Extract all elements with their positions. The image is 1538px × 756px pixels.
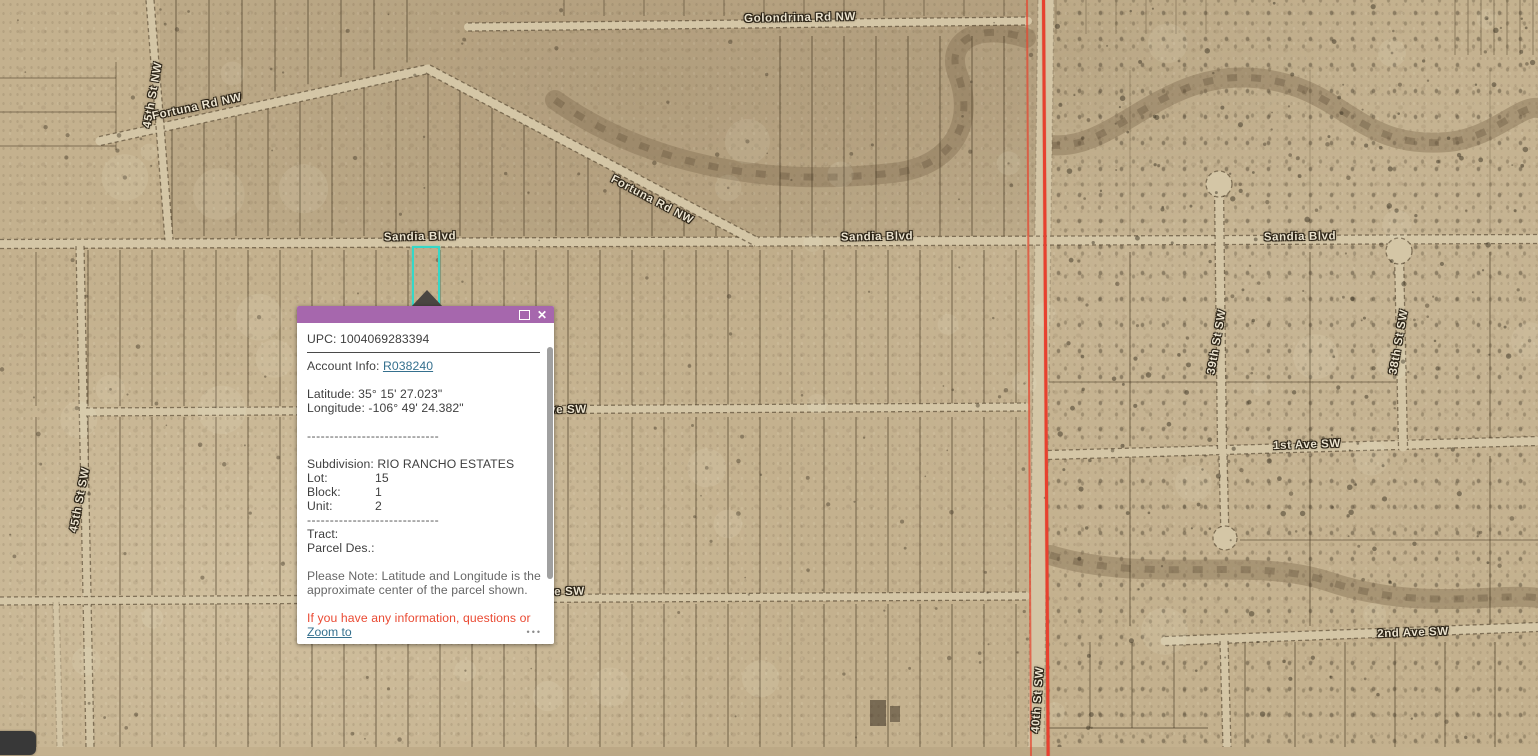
road-label: 38th St SW [1387, 308, 1410, 375]
zoom-to-link[interactable]: Zoom to [307, 625, 352, 639]
map-app: { "map": { "labels": [ "Golondrina Rd NW… [0, 0, 1538, 747]
tract-label: Tract: [307, 527, 540, 541]
road-labels-layer: Golondrina Rd NW45th St NWFortuna Rd NWF… [0, 0, 1538, 747]
close-icon[interactable]: ✕ [537, 309, 547, 321]
popup-footer: Zoom to ••• [307, 624, 542, 639]
dock-icon[interactable] [519, 310, 530, 320]
parcel-info-popup: ✕ UPC: 1004069283394 Account Info: R0382… [297, 306, 554, 644]
note-text: Please Note: Latitude and Longitude is t… [307, 569, 540, 583]
upc-value: UPC: 1004069283394 [307, 332, 540, 346]
road-label: ve SW [549, 404, 587, 417]
road-label: 40th St SW [1030, 667, 1047, 734]
road-label: 45th St SW [68, 466, 92, 533]
block-row: Block:1 [307, 485, 540, 499]
subdivision-value: Subdivision: RIO RANCHO ESTATES [307, 457, 540, 471]
note-text: approximate center of the parcel shown. [307, 583, 540, 597]
parcel-des-label: Parcel Des.: [307, 541, 540, 555]
road-label: Sandia Blvd [384, 230, 457, 243]
lot-row: Lot:15 [307, 471, 540, 485]
road-label: Fortuna Rd NW [609, 173, 695, 227]
longitude-value: Longitude: -106° 49' 24.382" [307, 401, 540, 415]
divider [307, 352, 540, 353]
lot-label: Lot: [307, 471, 375, 485]
road-label: Sandia Blvd [1264, 230, 1337, 243]
unit-value: 2 [375, 499, 382, 513]
road-label: Golondrina Rd NW [744, 11, 856, 25]
road-label: 2nd Ave SW [1377, 626, 1449, 640]
latitude-value: Latitude: 35° 15' 27.023" [307, 387, 540, 401]
road-label: 39th St SW [1205, 308, 1228, 375]
separator-dashes: ----------------------------- [307, 429, 540, 443]
road-label: 1st Ave SW [1273, 438, 1341, 452]
account-info-link[interactable]: R038240 [383, 359, 433, 373]
account-info-label: Account Info: [307, 359, 383, 373]
popup-callout-arrow [411, 290, 443, 307]
popup-scrollbar[interactable] [547, 347, 553, 579]
popup-header: ✕ [297, 306, 554, 323]
separator-dashes: ----------------------------- [307, 513, 540, 527]
unit-label: Unit: [307, 499, 375, 513]
popup-body: UPC: 1004069283394 Account Info: R038240… [297, 323, 554, 653]
lot-value: 15 [375, 471, 389, 485]
road-label: Sandia Blvd [841, 230, 914, 243]
more-options-button[interactable]: ••• [527, 627, 542, 637]
unit-row: Unit:2 [307, 499, 540, 513]
road-label: Fortuna Rd NW [151, 92, 243, 123]
map-corner-widget[interactable] [0, 731, 36, 755]
account-info-line: Account Info: R038240 [307, 359, 540, 373]
block-value: 1 [375, 485, 382, 499]
block-label: Block: [307, 485, 375, 499]
alert-text: If you have any information, questions o… [307, 611, 540, 625]
